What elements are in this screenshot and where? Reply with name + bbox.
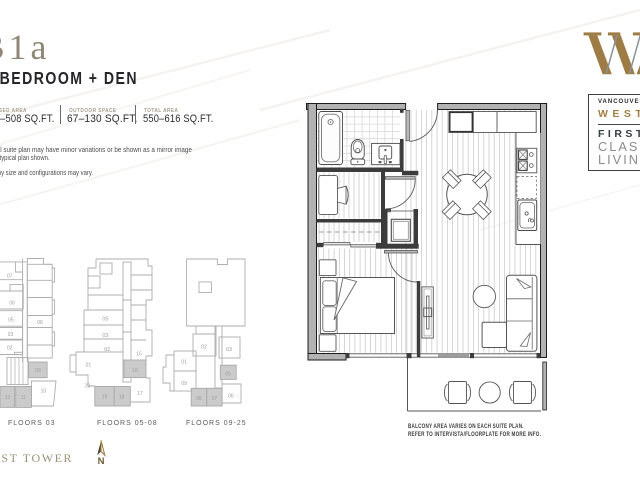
svg-text:11: 11: [21, 395, 26, 401]
svg-text:01: 01: [181, 360, 187, 366]
svg-text:03: 03: [226, 347, 232, 353]
svg-text:20: 20: [85, 384, 91, 390]
svg-text:N: N: [98, 456, 105, 467]
svg-text:03: 03: [8, 332, 14, 338]
svg-text:19: 19: [102, 394, 108, 400]
svg-text:15: 15: [136, 352, 142, 358]
svg-text:05: 05: [8, 318, 14, 324]
svg-text:02: 02: [7, 346, 13, 352]
svg-text:06: 06: [9, 301, 15, 307]
svg-text:07: 07: [212, 396, 218, 402]
svg-text:08: 08: [196, 396, 202, 402]
svg-text:10: 10: [41, 389, 47, 395]
svg-text:02: 02: [104, 347, 110, 353]
svg-text:16: 16: [132, 368, 138, 374]
svg-text:01: 01: [86, 362, 92, 368]
svg-text:18: 18: [119, 394, 125, 400]
svg-text:08: 08: [37, 320, 43, 326]
svg-text:07: 07: [7, 274, 13, 280]
svg-text:17: 17: [137, 391, 143, 397]
svg-text:03: 03: [102, 333, 108, 339]
svg-text:12: 12: [5, 395, 11, 401]
svg-text:09: 09: [181, 381, 187, 387]
svg-text:06: 06: [228, 394, 234, 400]
svg-text:09: 09: [35, 368, 41, 374]
svg-text:05: 05: [225, 371, 231, 377]
svg-text:05: 05: [102, 316, 108, 322]
svg-text:02: 02: [201, 345, 207, 351]
